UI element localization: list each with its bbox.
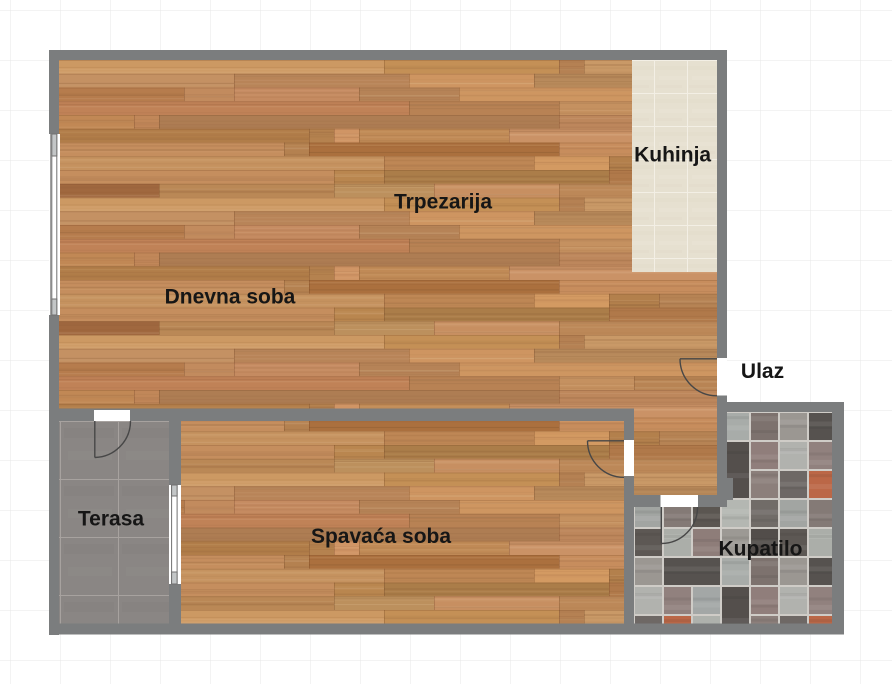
svg-text:Dnevna soba: Dnevna soba	[165, 286, 296, 309]
svg-text:Kupatilo: Kupatilo	[719, 537, 803, 560]
svg-text:Ulaz: Ulaz	[741, 360, 784, 383]
svg-text:Trpezarija: Trpezarija	[394, 190, 492, 213]
svg-text:Spavaća soba: Spavaća soba	[311, 525, 451, 548]
svg-text:Terasa: Terasa	[78, 507, 144, 530]
svg-text:Kuhinja: Kuhinja	[634, 144, 711, 167]
